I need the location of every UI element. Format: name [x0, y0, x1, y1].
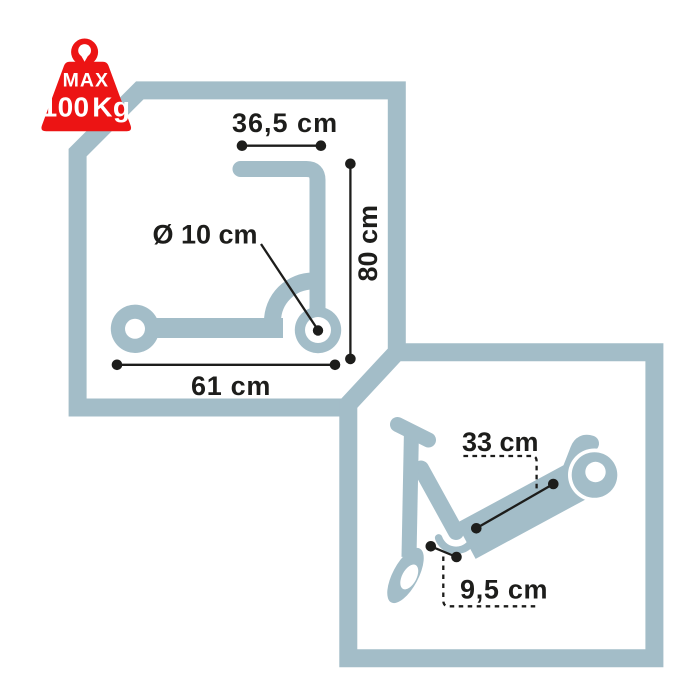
svg-text:36,5 cm: 36,5 cm: [232, 108, 338, 138]
svg-text:61 cm: 61 cm: [191, 371, 271, 401]
svg-text:9,5 cm: 9,5 cm: [460, 575, 548, 605]
svg-text:Ø 10 cm: Ø 10 cm: [153, 220, 258, 250]
svg-text:100 Kg: 100 Kg: [42, 92, 131, 123]
svg-text:MAX: MAX: [63, 70, 109, 92]
svg-text:80 cm: 80 cm: [353, 205, 383, 282]
svg-text:33 cm: 33 cm: [462, 427, 539, 457]
